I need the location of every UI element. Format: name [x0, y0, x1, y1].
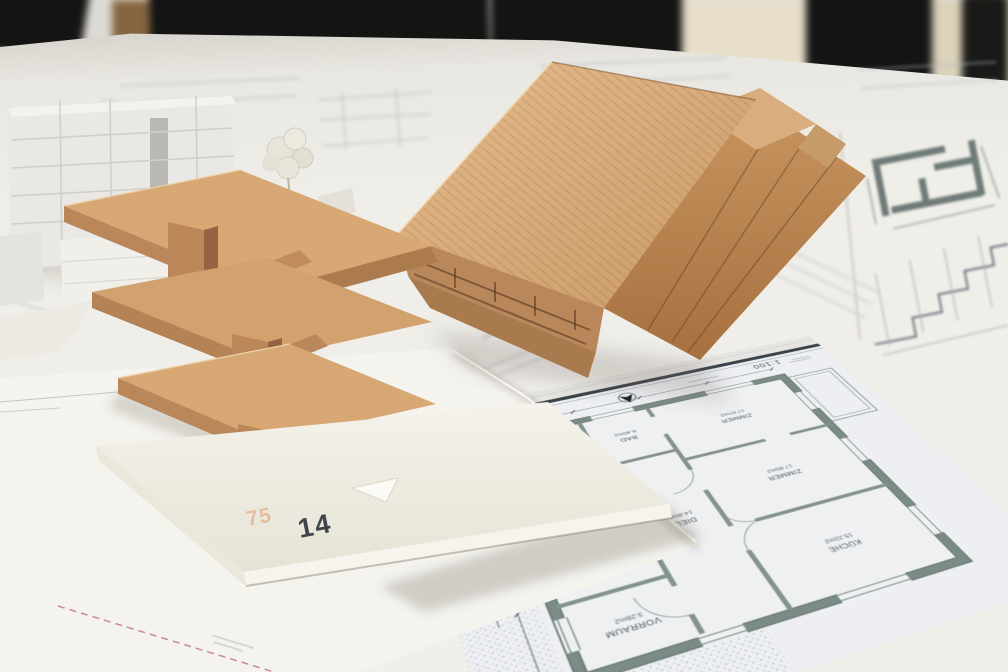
architectural-models: 75 14: [0, 0, 1008, 672]
photo-architectural-model-scene: 1:100 KÜCHE 15.22m2 ZIMMER 17.80m2 ZIMME…: [0, 0, 1008, 672]
base-number: 14: [295, 508, 334, 544]
wood-model-main-volume: [398, 62, 866, 378]
base-ghost-number: 75: [245, 503, 274, 530]
